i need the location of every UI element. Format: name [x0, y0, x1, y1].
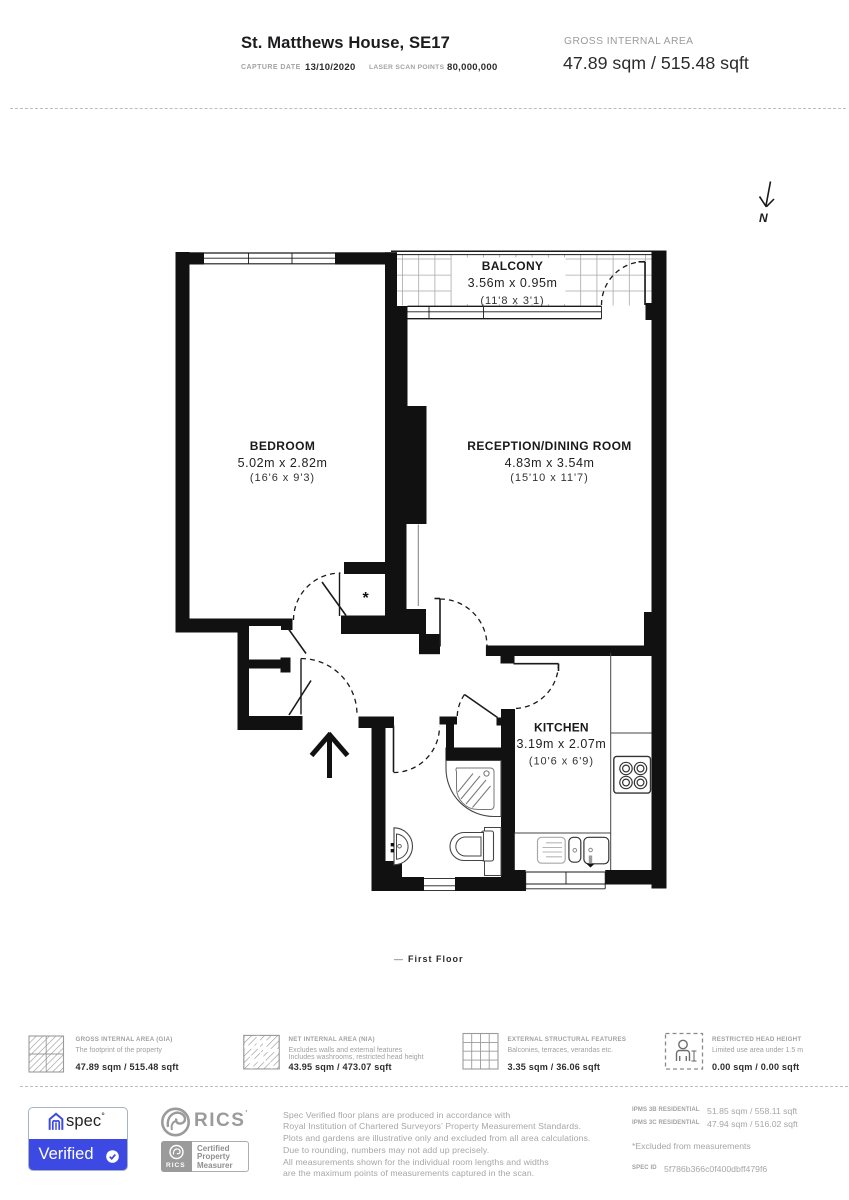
svg-text:BALCONY: BALCONY	[482, 259, 543, 273]
svg-text:4.83m x 3.54m: 4.83m x 3.54m	[505, 456, 595, 470]
svg-text:BEDROOM: BEDROOM	[250, 439, 315, 453]
svg-text:*: *	[363, 590, 370, 607]
svg-text:(16'6 x 9'3): (16'6 x 9'3)	[250, 472, 315, 484]
svg-text:3.19m x 2.07m: 3.19m x 2.07m	[516, 737, 606, 751]
svg-text:(11'8 x 3'1): (11'8 x 3'1)	[480, 295, 544, 307]
svg-text:3.56m x 0.95m: 3.56m x 0.95m	[468, 276, 558, 290]
svg-text:5.02m x 2.82m: 5.02m x 2.82m	[238, 456, 328, 470]
svg-text:(10'6 x 6'9): (10'6 x 6'9)	[529, 756, 594, 768]
svg-text:(15'10 x 11'7): (15'10 x 11'7)	[510, 472, 588, 484]
svg-text:KITCHEN: KITCHEN	[534, 721, 589, 735]
svg-text:RECEPTION/DINING ROOM: RECEPTION/DINING ROOM	[467, 439, 631, 453]
svg-text:N: N	[759, 211, 768, 225]
